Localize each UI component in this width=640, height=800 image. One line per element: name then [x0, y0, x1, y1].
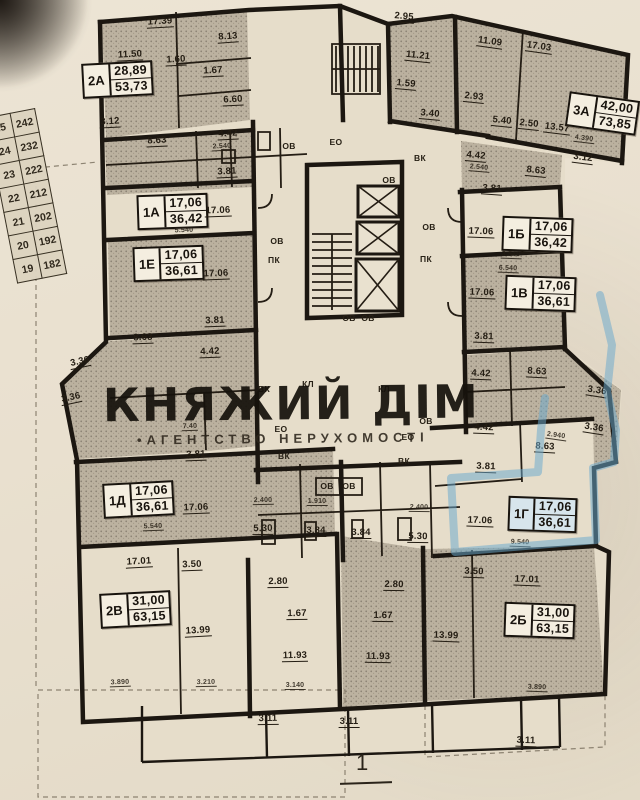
utility-label-ОВ: ОВ: [382, 175, 395, 185]
total-area: 63,15: [532, 621, 573, 637]
dimension-label: 6.540: [498, 265, 519, 274]
dimension-label: 13.99: [184, 624, 211, 637]
utility-label-ОВ: ОВ: [342, 313, 355, 323]
apartment-areas: 31,0063,15: [532, 605, 574, 637]
apartment-id: 1Е: [134, 248, 161, 280]
dimension-label: 11.21: [404, 49, 431, 64]
utility-label-ОВ: ОВ: [361, 313, 374, 323]
dimension-label: 3.11: [339, 716, 360, 728]
dimension-label: 3.81: [481, 182, 503, 195]
dimension-label: 1.67: [372, 610, 394, 622]
apartment-areas: 28,8953,73: [110, 62, 152, 95]
floorplan-page: 25242242322322222212212022019219182 2А28…: [0, 0, 640, 800]
utility-label-ОВ: ОВ: [282, 141, 295, 151]
dimension-label: 2.50: [518, 117, 540, 131]
dimension-label: 4.42: [465, 149, 487, 163]
dimension-label: 3.890: [527, 684, 548, 693]
apartment-areas: 17,0636,61: [533, 278, 575, 310]
dimension-label: 3.81: [216, 165, 238, 178]
apartment-id: 1В: [506, 277, 534, 309]
apartment-label-1Е: 1Е17,0636,61: [132, 245, 204, 282]
dimension-label: 2.940: [545, 431, 566, 442]
apartment-label-2А: 2А28,8953,73: [81, 60, 154, 99]
dimension-label: 1.59: [395, 77, 417, 91]
apartment-areas: 42,0073,85: [594, 97, 639, 133]
dimension-label: 3.81: [473, 331, 495, 344]
apartment-areas: 17,0636,61: [160, 247, 202, 279]
apartment-areas: 31,0063,15: [128, 592, 170, 625]
dimension-label: 3.50: [463, 566, 485, 579]
total-area: 36,42: [530, 235, 571, 251]
living-area: 31,00: [533, 605, 574, 622]
dimension-label: 17.01: [513, 574, 540, 587]
dimension-label: 1.910: [307, 498, 328, 506]
apartment-areas: 17,0636,42: [530, 219, 572, 251]
dimension-label: 8.63: [146, 134, 168, 147]
dimension-label: 1.67: [202, 64, 224, 77]
dimension-label: 17.01: [125, 555, 152, 568]
dimension-label: 2.80: [383, 579, 405, 591]
dimension-label: 4.42: [199, 346, 221, 359]
living-area: 17,06: [531, 219, 572, 236]
dimension-label: 13.99: [432, 630, 459, 643]
dimension-label: 4.42: [217, 127, 239, 140]
watermark-subtitle: •АГЕНТСТВО НЕРУХОМОСТІ: [137, 429, 429, 447]
dimension-label: 2.540: [468, 163, 489, 173]
utility-label-ОВ: ОВ: [422, 222, 435, 232]
dimension-label: 3.81: [204, 315, 226, 328]
total-area: 36,61: [161, 263, 202, 279]
apartment-id: 1Г: [509, 498, 535, 530]
dimension-label: 17.06: [468, 287, 495, 300]
utility-label-ВК: ВК: [398, 456, 410, 466]
apartment-label-2В: 2В31,0063,15: [99, 590, 172, 629]
dimension-label: 3.12: [572, 151, 595, 166]
utility-label-ОВ: ОВ: [270, 236, 283, 246]
apartment-label-1Д: 1Д17,0636,61: [102, 480, 175, 519]
apartment-areas: 17,0636,61: [534, 499, 576, 531]
dimension-label: 2.80: [267, 576, 289, 588]
total-area: 63,15: [129, 608, 171, 625]
dimension-label: 8.63: [526, 365, 548, 378]
dimension-label: 11.50: [117, 48, 144, 61]
dimension-label: 3.36: [586, 383, 609, 398]
apartment-label-2Б: 2Б31,0063,15: [503, 602, 576, 639]
dimension-label: 5.30: [407, 531, 429, 543]
dimension-label: 2.400: [253, 497, 274, 505]
utility-label-ВК: ВК: [278, 451, 290, 461]
total-area: 53,73: [111, 78, 153, 95]
apartment-label-1Б: 1Б17,0636,42: [501, 216, 574, 253]
watermark-title: КНЯЖИЙ ДІМ: [103, 374, 480, 432]
dimension-label: 3.210: [196, 679, 217, 687]
dimension-label: 17.06: [467, 226, 494, 239]
apartment-id: 1Д: [104, 484, 132, 516]
dimension-label: 3.36: [68, 354, 91, 370]
dimension-label: 2.540: [212, 142, 233, 151]
dimension-label: 3.12: [99, 115, 121, 128]
dimension-label: 11.93: [365, 651, 391, 663]
utility-label-ОВ: ОВ: [320, 481, 333, 491]
total-area: 36,42: [166, 211, 207, 227]
dimension-label: 17.03: [525, 39, 553, 55]
living-area: 17,06: [534, 278, 575, 295]
dimension-label: 5.540: [174, 227, 195, 236]
dimension-label: 17.06: [204, 205, 231, 218]
apartment-areas: 17,0636,61: [131, 482, 173, 515]
dimension-label: 3.84: [305, 525, 326, 537]
dimension-label: 3.140: [285, 682, 306, 690]
dimension-label: 3.81: [185, 449, 207, 462]
dimension-label: 3.36: [59, 390, 82, 406]
utility-label-ПК: ПК: [420, 254, 432, 264]
total-area: 36,61: [533, 294, 574, 310]
living-area: 17,06: [535, 499, 576, 516]
dimension-label: 8.63: [525, 164, 547, 178]
apartment-label-3А: 3А42,0073,85: [565, 91, 640, 136]
dimension-label: 11.93: [282, 650, 308, 662]
apartment-id: 1Б: [503, 218, 531, 250]
dimension-label: 9.540: [510, 539, 531, 548]
dimension-label: 17.39: [146, 15, 173, 28]
dimension-label: 3.36: [583, 420, 606, 435]
apartment-id: 2В: [101, 594, 129, 626]
dimension-label: 17.06: [182, 502, 209, 515]
dimension-label: 1.67: [286, 608, 308, 620]
dimension-label: 5.30: [252, 523, 274, 535]
apartment-label-1Г: 1Г17,0636,61: [507, 496, 578, 533]
apartment-id: 1А: [138, 196, 166, 228]
dimension-label: 3.40: [419, 107, 441, 121]
living-area: 17,06: [165, 195, 206, 212]
dimension-label: 3.81: [475, 461, 497, 474]
dimension-label: 1.60: [165, 53, 187, 66]
utility-label-ОВ: ОВ: [342, 481, 355, 491]
dimension-label: 5.40: [491, 114, 513, 128]
dimension-label: 13.57: [543, 120, 571, 135]
dimension-label: 3.84: [350, 527, 371, 539]
apartment-label-1В: 1В17,0636,61: [504, 275, 577, 312]
dimension-label: 8.63: [132, 332, 154, 345]
utility-label-ПК: ПК: [268, 255, 280, 265]
apartment-id: 2А: [83, 64, 111, 96]
apartment-id: 2Б: [505, 604, 533, 636]
dimension-label: 2.95: [393, 10, 415, 24]
dimension-label: 11.09: [476, 34, 504, 50]
dimension-label: 17.06: [466, 515, 493, 528]
total-area: 36,61: [132, 498, 174, 515]
utility-label-ЕО: ЕО: [330, 137, 343, 147]
dimension-label: 4.390: [573, 134, 594, 144]
dimension-label: 8.63: [534, 440, 556, 453]
dimension-label: 3.890: [110, 679, 131, 688]
dimension-label: 3.11: [258, 713, 279, 725]
dimension-label: 8.13: [217, 30, 239, 43]
apartment-label-1А: 1А17,0636,42: [136, 193, 209, 230]
apartment-areas: 17,0636,42: [165, 195, 207, 227]
dimension-label: 3.50: [181, 559, 203, 572]
total-area: 36,61: [534, 515, 575, 531]
living-area: 17,06: [160, 247, 201, 264]
dimension-label: 5.540: [143, 523, 164, 532]
dimension-label: 2.93: [463, 90, 485, 104]
dimension-label: 2.400: [409, 504, 430, 512]
dimension-label: 17.06: [202, 268, 229, 281]
dimension-label: 3.11: [515, 735, 536, 748]
page-number: 1: [356, 750, 368, 776]
utility-label-ВК: ВК: [414, 153, 426, 163]
dimension-label: 3.540: [501, 251, 522, 260]
dimension-label: 6.60: [222, 93, 244, 106]
